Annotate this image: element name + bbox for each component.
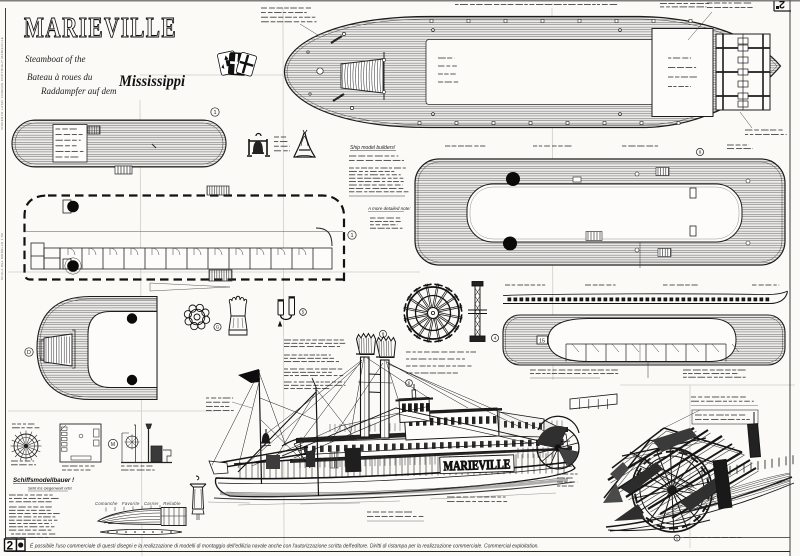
svg-text:G: G (216, 325, 220, 330)
svg-text:É possibile l'uso commerciale: É possibile l'uso commerciale di questi … (30, 543, 539, 550)
svg-text:Steamboat of the: Steamboat of the (25, 54, 86, 64)
svg-text:Comanche Favorite Carrier: Comanche Favorite Carrier Reliable (95, 501, 181, 506)
svg-text:c: c (676, 535, 678, 540)
svg-text:Ship model builders!: Ship model builders! (350, 145, 396, 151)
svg-text:8: 8 (382, 332, 385, 337)
svg-text:1: 1 (350, 233, 353, 239)
svg-text:MARIEVILLE: MARIEVILLE (443, 456, 510, 473)
svg-text:6: 6 (699, 150, 702, 155)
svg-text:Bateau à roues du: Bateau à roues du (27, 72, 93, 82)
svg-text:Mississippi: Mississippi (118, 73, 185, 90)
svg-text:4: 4 (494, 336, 497, 341)
svg-text:2: 2 (7, 539, 14, 553)
svg-text:Seht ins Gegenwart orts!: Seht ins Gegenwart orts! (28, 486, 73, 491)
svg-text:2: 2 (779, 0, 785, 10)
svg-text:D: D (27, 350, 31, 356)
svg-text:Schiffsmodellbauer !: Schiffsmodellbauer ! (13, 477, 74, 484)
svg-text:Raddampfer auf dem: Raddampfer auf dem (40, 86, 117, 96)
svg-text:M: M (111, 442, 115, 448)
svg-text:1: 1 (213, 110, 216, 116)
svg-text:SCALA DEL MODELLO 1:50: SCALA DEL MODELLO 1:50 (0, 233, 4, 280)
svg-text:VINCENZO LUSCI FIRENZE COPYRIG: VINCENZO LUSCI FIRENZE COPYRIGHT MARIEVI… (0, 37, 4, 130)
svg-text:15: 15 (539, 339, 545, 345)
svg-text:MARIEVILLE: MARIEVILLE (24, 12, 177, 44)
svg-text:A more detailed note:: A more detailed note: (367, 206, 411, 211)
